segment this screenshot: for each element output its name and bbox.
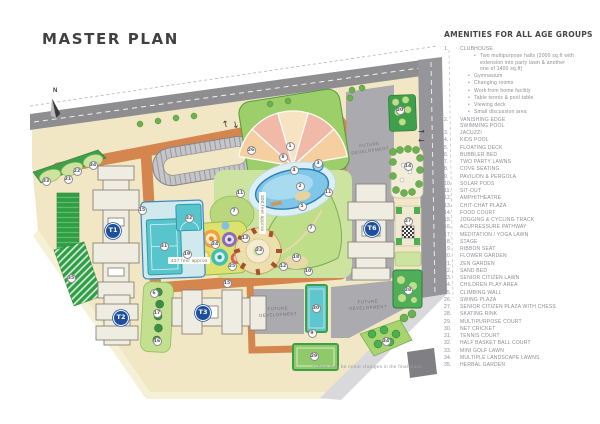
amenity-item-18: 18.STAGE xyxy=(444,239,596,245)
plan-marker-15: 15 xyxy=(138,206,147,215)
plan-marker-6: 6 xyxy=(150,289,159,298)
amenity-item-30: 30.NET CRICKET xyxy=(444,326,596,332)
plan-marker-20: 20 xyxy=(396,106,405,115)
plan-marker-21: 21 xyxy=(64,175,73,184)
plan-marker-11: 11 xyxy=(236,189,245,198)
page-title: MASTER PLAN xyxy=(42,30,179,48)
amenity-item-20: 20.FLOWER GARDEN xyxy=(444,253,596,259)
plan-marker-32: 32 xyxy=(185,214,194,223)
north-arrow-icon xyxy=(44,94,64,120)
amenity-item-34: 34.MULTIPLE LANDSCAPE LAWNS xyxy=(444,355,596,361)
plan-marker-29: 29 xyxy=(310,352,319,361)
plan-marker-15: 15 xyxy=(223,279,232,288)
plan-marker-16: 16 xyxy=(153,337,162,346)
amenity-sub-item: •Viewing deck xyxy=(468,102,596,108)
plan-marker-3: 3 xyxy=(314,159,323,168)
amenity-sub-item: •Changing rooms xyxy=(468,80,596,86)
amenity-item-25: 25.CLIMBING WALL xyxy=(444,290,596,296)
amenity-item-12: 12.AMPHITHEATRE xyxy=(444,195,596,201)
plan-marker-31: 31 xyxy=(160,242,169,251)
plan-marker-10: 10 xyxy=(304,267,313,276)
plan-marker-9: 9 xyxy=(308,329,317,338)
plan-marker-27: 27 xyxy=(404,217,413,226)
plan-marker-34: 34 xyxy=(89,161,98,170)
plan-marker-25: 25 xyxy=(228,262,237,271)
tower-badge-t6: T6 xyxy=(364,221,380,237)
plan-marker-19: 19 xyxy=(183,250,192,259)
amenities-list: 1.CLUBHOUSE•Two multipurpose halls (2000… xyxy=(444,46,596,368)
amenities-panel: AMENITIES FOR ALL AGE GROUPS 1.CLUBHOUSE… xyxy=(444,30,596,369)
plan-marker-5: 5 xyxy=(298,202,307,211)
amenity-item-24: 24.CHILDREN PLAY AREA xyxy=(444,282,596,288)
plan-marker-8: 8 xyxy=(279,153,288,162)
amenity-item-14: 14.FOOD COURT xyxy=(444,210,596,216)
plan-marker-28: 28 xyxy=(404,286,413,295)
plan-marker-4: 4 xyxy=(290,166,299,175)
amenity-item-28: 28.SKATING RINK xyxy=(444,311,596,317)
plan-marker-17: 17 xyxy=(153,309,162,318)
amenity-item-16: 16.ACUPRESSURE PATHWAY xyxy=(444,224,596,230)
plan-marker-22: 22 xyxy=(73,167,82,176)
amenity-item-17: 17.MEDITATION / YOGA LAWN xyxy=(444,232,596,238)
disclaimer-footnote: *There may be minor changes in the final… xyxy=(292,365,422,370)
amenity-item-10: 10.SOLAR PODS xyxy=(444,181,596,187)
plan-marker-26: 26 xyxy=(247,146,256,155)
amenity-item-15: 15.JOGGING & CYCLING TRACK xyxy=(444,217,596,223)
amenity-item-9: 9.PAVILION & PERGOLA xyxy=(444,174,596,180)
plan-marker-1: 1 xyxy=(286,142,295,151)
amenity-item-19: 19.RIBBON SEAT xyxy=(444,246,596,252)
plan-marker-12: 12 xyxy=(279,262,288,271)
plan-marker-13: 13 xyxy=(241,234,250,243)
plan-marker-2: 2 xyxy=(296,182,305,191)
plan-marker-7: 7 xyxy=(307,224,316,233)
amenity-item-32: 32.HALF BASKET BALL COURT xyxy=(444,340,596,346)
amenity-item-7: 7.TWO PARTY LAWNS xyxy=(444,159,596,165)
amenity-item-31: 31.TENNIS COURT xyxy=(444,333,596,339)
plan-marker-33: 33 xyxy=(42,177,51,186)
tower-badge-t1: T1 xyxy=(105,223,121,239)
amenity-item-11: 11.SIT-OUT xyxy=(444,188,596,194)
amenity-sub-item: •Small discussion area xyxy=(468,109,596,115)
amenity-item-35: 35.HERBAL GARDEN xyxy=(444,362,596,368)
amenity-item-23: 23.SENIOR CITIZEN LAWN xyxy=(444,275,596,281)
tower-badge-t2: T2 xyxy=(113,310,129,326)
plan-marker-14: 14 xyxy=(404,162,413,171)
amenity-item-33: 33.MINI GOLF LAWN xyxy=(444,348,596,354)
plan-marker-11: 11 xyxy=(324,188,333,197)
amenity-item-6: 6.BUBBLER BED xyxy=(444,152,596,158)
amenity-item-5: 5.FLOATING DECK xyxy=(444,145,596,151)
amenity-item-26: 26.SWING PLAZA xyxy=(444,297,596,303)
amenity-item-3: 3.JACUZZI xyxy=(444,130,596,136)
plan-marker-23: 23 xyxy=(255,246,264,255)
plan-marker-18: 18 xyxy=(292,253,301,262)
amenity-item-29: 29.MULTIPURPOSE COURT xyxy=(444,319,596,325)
amenity-item-4: 4.KIDS POOL xyxy=(444,137,596,143)
amenity-sub-item: •Table tennis & pool table xyxy=(468,95,596,101)
amenity-item-8: 8.COVE SEATING xyxy=(444,166,596,172)
amenity-item-22: 22.SAND BED xyxy=(444,268,596,274)
tower-badge-t3: T3 xyxy=(195,305,211,321)
plan-marker-24: 24 xyxy=(211,240,220,249)
amenity-sub-item: •Two multipurpose halls (2000 sq.ft with… xyxy=(474,53,596,72)
plan-marker-35: 35 xyxy=(67,274,76,283)
amenities-heading: AMENITIES FOR ALL AGE GROUPS xyxy=(444,30,596,39)
amenity-item-13: 13.CHIT-CHAT PLAZA xyxy=(444,203,596,209)
amenity-sub-item: •Gymnasium xyxy=(468,73,596,79)
master-plan-page: ↑ ↓ → ← FUTURE DEVELOPMENT FUTURE DEVELO… xyxy=(0,0,600,424)
amenity-item-2: 2.VANISHING EDGE SWIMMING POOL xyxy=(444,117,596,130)
plan-marker-7: 7 xyxy=(230,207,239,216)
amenity-sub-item: •Work from home facility xyxy=(468,88,596,94)
amenity-item-27: 27.SENIOR CITIZEN PLAZA WITH CHESS xyxy=(444,304,596,310)
plan-marker-30: 30 xyxy=(312,304,321,313)
amenity-item-1: 1.CLUBHOUSE xyxy=(444,46,596,52)
plan-marker-34: 34 xyxy=(382,337,391,346)
amenity-item-21: 21.ZEN GARDEN xyxy=(444,261,596,267)
